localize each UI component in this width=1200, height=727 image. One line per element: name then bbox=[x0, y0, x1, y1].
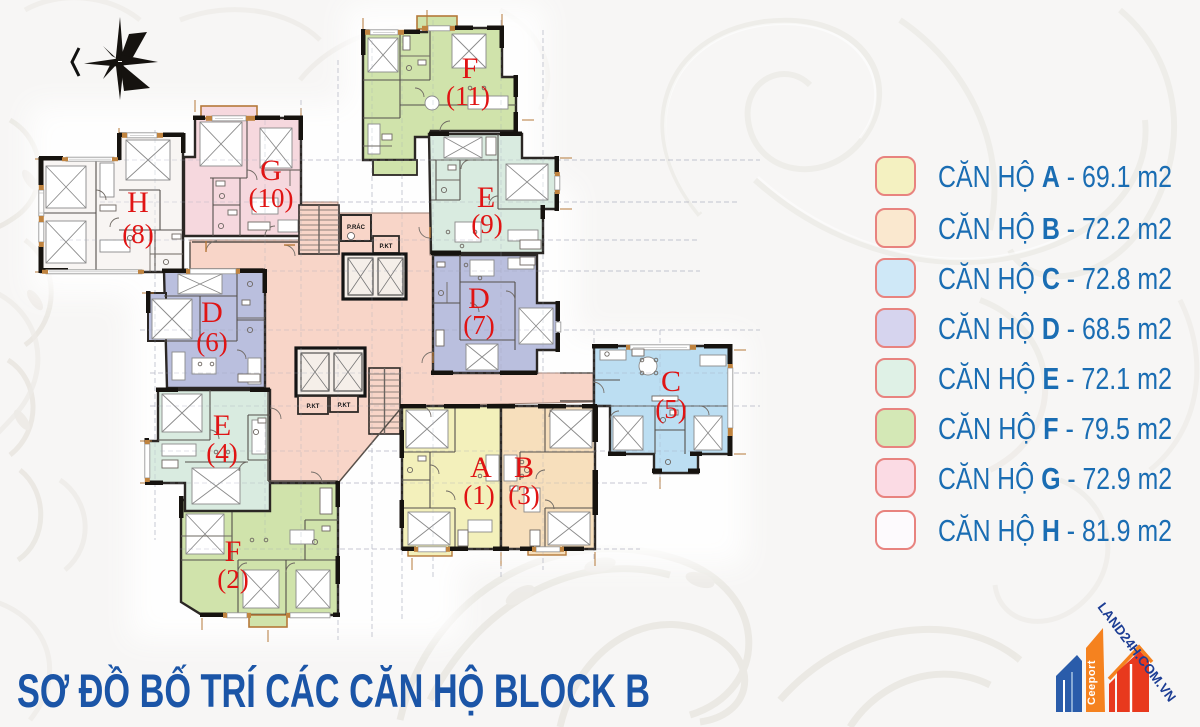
svg-text:(1): (1) bbox=[463, 480, 494, 510]
svg-text:CĂN HỘ F - 79.5 m2: CĂN HỘ F - 79.5 m2 bbox=[938, 411, 1172, 446]
svg-text:CĂN HỘ E - 72.1 m2: CĂN HỘ E - 72.1 m2 bbox=[938, 361, 1172, 396]
svg-text:Ceeport: Ceeport bbox=[1086, 660, 1098, 705]
svg-text:(4): (4) bbox=[206, 438, 237, 468]
svg-text:(3): (3) bbox=[508, 480, 539, 510]
svg-text:CĂN HỘ C - 72.8 m2: CĂN HỘ C - 72.8 m2 bbox=[938, 261, 1172, 296]
svg-text:(11): (11) bbox=[446, 81, 490, 111]
svg-text:(2): (2) bbox=[217, 564, 248, 594]
svg-text:P.KT: P.KT bbox=[307, 404, 320, 410]
svg-text:CĂN HỘ B - 72.2 m2: CĂN HỘ B - 72.2 m2 bbox=[938, 211, 1172, 246]
svg-text:SƠ ĐỒ BỐ TRÍ CÁC CĂN HỘ BLOCK: SƠ ĐỒ BỐ TRÍ CÁC CĂN HỘ BLOCK B bbox=[17, 664, 650, 717]
svg-text:(9): (9) bbox=[471, 209, 502, 239]
svg-text:CĂN HỘ H - 81.9 m2: CĂN HỘ H - 81.9 m2 bbox=[938, 513, 1172, 548]
svg-text:(8): (8) bbox=[122, 219, 153, 249]
svg-text:P.RÁC: P.RÁC bbox=[347, 224, 366, 231]
svg-text:CĂN HỘ A - 69.1 m2: CĂN HỘ A - 69.1 m2 bbox=[938, 159, 1172, 194]
svg-text:D: D bbox=[201, 296, 223, 329]
svg-text:(10): (10) bbox=[249, 183, 294, 213]
svg-text:(7): (7) bbox=[463, 310, 494, 340]
svg-text:(5): (5) bbox=[655, 394, 686, 424]
svg-text:(6): (6) bbox=[196, 327, 227, 357]
svg-text:CĂN HỘ G - 72.9 m2: CĂN HỘ G - 72.9 m2 bbox=[938, 461, 1172, 496]
svg-text:CĂN HỘ D - 68.5 m2: CĂN HỘ D - 68.5 m2 bbox=[938, 311, 1172, 346]
svg-text:H: H bbox=[127, 186, 149, 219]
svg-text:P.KT: P.KT bbox=[380, 244, 393, 250]
